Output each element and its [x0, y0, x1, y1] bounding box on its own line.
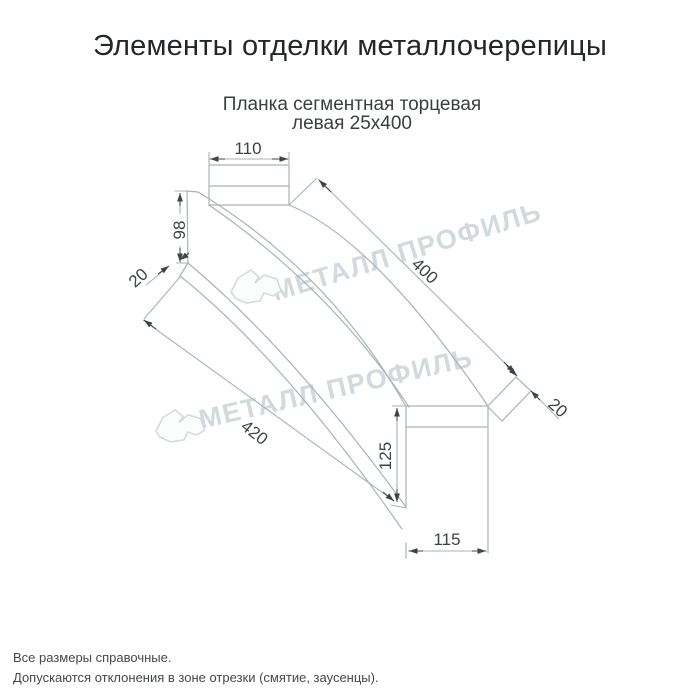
- left-end-flange-edge: [180, 263, 188, 276]
- long-edge-3: [289, 205, 488, 406]
- page-title: Элементы отделки металлочерепицы: [0, 30, 700, 63]
- left-end-top-edge: [187, 191, 198, 192]
- dim-115-label: 115: [433, 530, 460, 549]
- dim-125-label: 125: [376, 442, 395, 470]
- subtitle-line-1: Планка сегментная торцевая: [0, 95, 700, 114]
- long-edge-4: [188, 263, 406, 507]
- dim-420-line: [143, 320, 394, 501]
- drawing-subtitle: Планка сегментная торцевая левая 25х400: [0, 95, 700, 133]
- watermark-logo: [156, 270, 281, 442]
- dim-420-label: 420: [237, 416, 271, 448]
- note-reference-dimensions: Все размеры справочные.: [13, 648, 379, 668]
- dim-110-label: 110: [234, 139, 261, 158]
- dim-400-label: 400: [408, 254, 442, 287]
- long-edge-2: [209, 205, 409, 407]
- dim-20-right-label: 20: [544, 395, 571, 422]
- dim-98-label: 98: [170, 221, 189, 240]
- note-cutting-tolerance: Допускаются отклонения в зоне отрезки (с…: [13, 668, 379, 688]
- dim-400-ext: [289, 178, 317, 205]
- dim-420-ext: [144, 277, 180, 319]
- dim-20-left-label: 20: [125, 265, 152, 292]
- right-flange-face: [488, 377, 531, 421]
- dimension-lines: [143, 152, 559, 551]
- dimension-arrows: [144, 159, 540, 551]
- long-edge-1: [198, 192, 405, 405]
- dimension-labels: 110 98 20 400 420 20 125 115: [125, 139, 571, 549]
- drawing-page: МЕТАЛЛ ПРОФИЛЬ МЕТАЛЛ ПРОФИЛЬ Элементы о…: [0, 0, 700, 700]
- profile-outline: [180, 165, 531, 558]
- long-edge-5: [180, 276, 402, 529]
- far-end-face: [209, 165, 289, 205]
- footer-notes: Все размеры справочные. Допускаются откл…: [13, 648, 379, 688]
- subtitle-line-2: левая 25х400: [0, 114, 700, 133]
